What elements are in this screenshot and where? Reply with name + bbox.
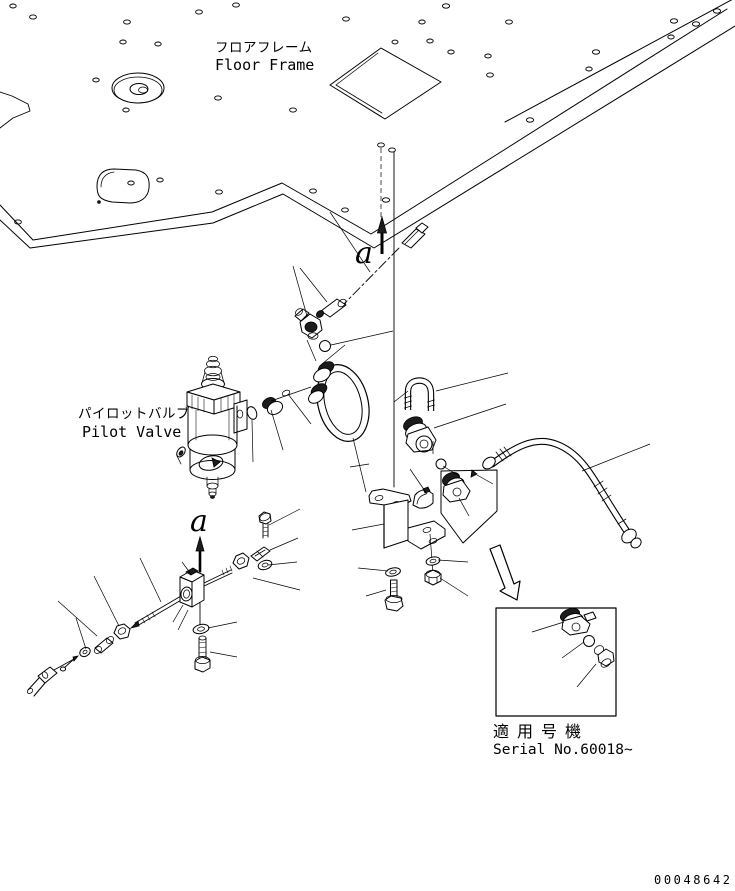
leader-line (307, 340, 316, 361)
bolt-hole (382, 198, 389, 202)
leader-line (436, 373, 508, 391)
bolt-shaft-top (199, 636, 206, 640)
rod-exit-edge (204, 570, 231, 583)
leader-line (438, 560, 468, 562)
parts-diagram: フロアフレーム Floor Frame a (0, 0, 735, 891)
bolt-hole (448, 50, 454, 54)
washer (425, 556, 440, 567)
leader-line (288, 394, 311, 424)
stem-collar (207, 483, 218, 489)
bolt-hole (668, 35, 674, 39)
bolt-hole (713, 9, 720, 13)
bolt-hole (592, 50, 599, 54)
valve-port-lever (212, 458, 220, 467)
square-cutout-inner-edge (336, 53, 382, 113)
thread-mark (199, 647, 206, 648)
bolt-hole (378, 143, 385, 147)
leader-line (366, 590, 386, 596)
nipple-body (321, 299, 346, 317)
leader-line (94, 576, 119, 626)
lock-nut-small (78, 646, 92, 659)
bolt-hole (692, 22, 699, 26)
elbow-stub (584, 612, 596, 621)
callout-o-ring (584, 636, 595, 647)
pin-head (60, 667, 65, 671)
leader-line (410, 469, 427, 494)
valve-port-parts (246, 389, 291, 421)
leader-line (268, 562, 297, 565)
bolt-hole (485, 54, 491, 58)
bolt-hole (343, 17, 350, 21)
square-cutout (330, 48, 441, 119)
bolt-hole (123, 108, 129, 112)
valve-tab (234, 400, 247, 433)
rounded-cutout-outline (97, 169, 149, 203)
callout-plug (593, 644, 614, 669)
bracket-hardware (385, 556, 441, 611)
pilot-valve: パイロットバルブ Pilot Valve (78, 356, 247, 498)
leader-line (58, 601, 97, 636)
rod-exit-edge (204, 573, 232, 586)
loop-hose (306, 359, 376, 447)
thread-mark (199, 642, 206, 643)
floor-frame-label-en: Floor Frame (215, 56, 314, 74)
section-marker-a-top: a (355, 148, 387, 271)
grommet-center (139, 87, 148, 93)
leader-line (271, 410, 283, 450)
valve-body-bulge (188, 435, 237, 455)
leader-line (562, 642, 584, 658)
washer-below-block (192, 623, 210, 635)
hex-nut-rod2 (233, 553, 249, 569)
bracket-bottom-flange (408, 521, 445, 549)
bracket-web (384, 500, 408, 548)
bolt-hole (30, 15, 37, 19)
hex-nut-rod (114, 624, 130, 639)
leader-line (440, 578, 468, 596)
leader-line (300, 268, 327, 302)
leader-line (252, 420, 253, 462)
tube-clamp (413, 487, 433, 508)
leader-line (173, 605, 183, 622)
rod-edge (135, 596, 181, 623)
bolt-hole (120, 40, 126, 44)
spring-pin (251, 547, 270, 561)
long-hose-outline (492, 441, 626, 530)
leader-line (270, 538, 298, 550)
washer (385, 567, 401, 578)
bolt-hole (196, 10, 203, 14)
leader-line (76, 618, 86, 649)
bolt-hole (392, 40, 398, 44)
clevis-stud-tip (73, 656, 78, 661)
bolt-hole (155, 42, 161, 46)
rounded-cutout (97, 169, 149, 203)
rod-edge (137, 599, 183, 626)
direction-arrow (490, 545, 520, 600)
leader-line (210, 652, 237, 657)
bolt-hole (310, 189, 317, 193)
bolt-hole (442, 4, 449, 8)
nut-face (78, 646, 92, 659)
floor-frame-label-jp: フロアフレーム (215, 40, 313, 56)
section-marker-a-bottom: a (190, 504, 208, 627)
elbow-bore (305, 322, 317, 332)
mounting-bracket (369, 489, 445, 549)
spacer-sleeve (93, 635, 115, 655)
serial-callout: 適用号機 Serial No.60018~ (493, 606, 633, 758)
o-ring-lower (436, 459, 446, 469)
leader-line (178, 610, 188, 630)
hex-callout (440, 470, 497, 543)
leader-line (459, 498, 469, 516)
bolt-hole (215, 96, 222, 100)
bolt-hole (128, 181, 134, 185)
rounded-cutout-inner-edge (101, 172, 114, 187)
leader-line (253, 578, 300, 590)
bolt-hole (157, 178, 163, 182)
grommet-rim (114, 77, 162, 103)
bolt-hole (487, 73, 494, 77)
thread-mark (263, 535, 268, 536)
bolt-head (195, 657, 210, 672)
bolt-hole (233, 3, 240, 7)
floor-frame-edge-strip (505, 0, 735, 122)
thread-mark (263, 527, 268, 528)
bolt (385, 580, 403, 611)
stem-end (211, 496, 215, 499)
applicable-model-label-jp: 適用号機 (493, 722, 589, 741)
bolt-hole (93, 78, 99, 82)
washer (192, 623, 210, 635)
bolt-head (385, 596, 403, 611)
leader-line (434, 404, 506, 428)
bolt-hole (389, 148, 396, 152)
rod-block (180, 566, 232, 607)
rod-linkage-assembly: a (26, 504, 273, 696)
nut-body (233, 553, 249, 569)
applicable-model-label-en: Serial No.60018~ (493, 742, 633, 758)
bolt-hole (216, 190, 223, 194)
valve-front-port (198, 454, 224, 473)
nipple-fitting (315, 298, 347, 319)
hex-nut (425, 570, 441, 585)
leader-line (477, 475, 493, 484)
section-marker-letter: a (190, 504, 208, 539)
sleeve-body (95, 638, 113, 653)
bolt-hole (124, 20, 131, 24)
floor-frame-left-notch (0, 92, 30, 128)
square-cutout-outline (330, 48, 441, 119)
parts-diagram-page: フロアフレーム Floor Frame a (0, 0, 735, 891)
leader-line (352, 524, 384, 530)
o-ring-mid (320, 341, 331, 352)
floor-frame-edge-thickness (0, 26, 735, 248)
bolt-hole (419, 20, 425, 24)
u-tube (401, 381, 446, 470)
leader-line (358, 568, 388, 571)
bolt-hole (526, 118, 533, 122)
bolt-hole (670, 19, 677, 23)
clamp-body (413, 490, 433, 508)
leader-line (577, 664, 596, 687)
thread-mark (263, 531, 268, 532)
weld-dot (98, 201, 101, 204)
bolt-holes (10, 3, 721, 224)
bolt-hole (10, 4, 16, 8)
leader-line (271, 387, 311, 401)
nut-body (114, 624, 130, 639)
bolt-hole (586, 67, 592, 71)
leader-line (269, 509, 300, 525)
thread-mark (199, 652, 206, 653)
plug-head (598, 649, 614, 666)
leader-line (208, 622, 237, 628)
leader-line (331, 331, 393, 345)
valve-top-plate (187, 384, 240, 414)
leader-line (532, 622, 564, 632)
pilot-valve-label-en: Pilot Valve (82, 423, 181, 441)
floor-frame-edge-top (0, 9, 727, 240)
hose-nut (480, 455, 497, 472)
bolt-hole (427, 39, 433, 43)
section-arrow-head (196, 537, 204, 551)
callout-elbow-fitting (559, 606, 596, 635)
leader-line (140, 558, 161, 602)
clevis-fork (34, 683, 45, 696)
drawing-number: 00048642 (654, 873, 733, 887)
bolt-below-block (195, 636, 210, 672)
pilot-valve-label-jp: パイロットバルブ (78, 405, 190, 422)
bolt-hole (506, 20, 513, 24)
valve-bottom-stem (207, 477, 218, 498)
floor-frame: フロアフレーム Floor Frame (0, 0, 735, 248)
valve-side-tab (234, 400, 247, 433)
long-hose (480, 441, 643, 550)
rod-tip (131, 621, 139, 628)
bolt-hole (290, 108, 297, 112)
grommet-hole (112, 73, 164, 103)
leader-line (582, 444, 650, 471)
control-rod (131, 596, 183, 628)
bolt-hole (342, 208, 349, 212)
leader-line (322, 345, 345, 364)
clevis-fork-tip (26, 687, 33, 694)
callout-pointer (471, 470, 477, 477)
